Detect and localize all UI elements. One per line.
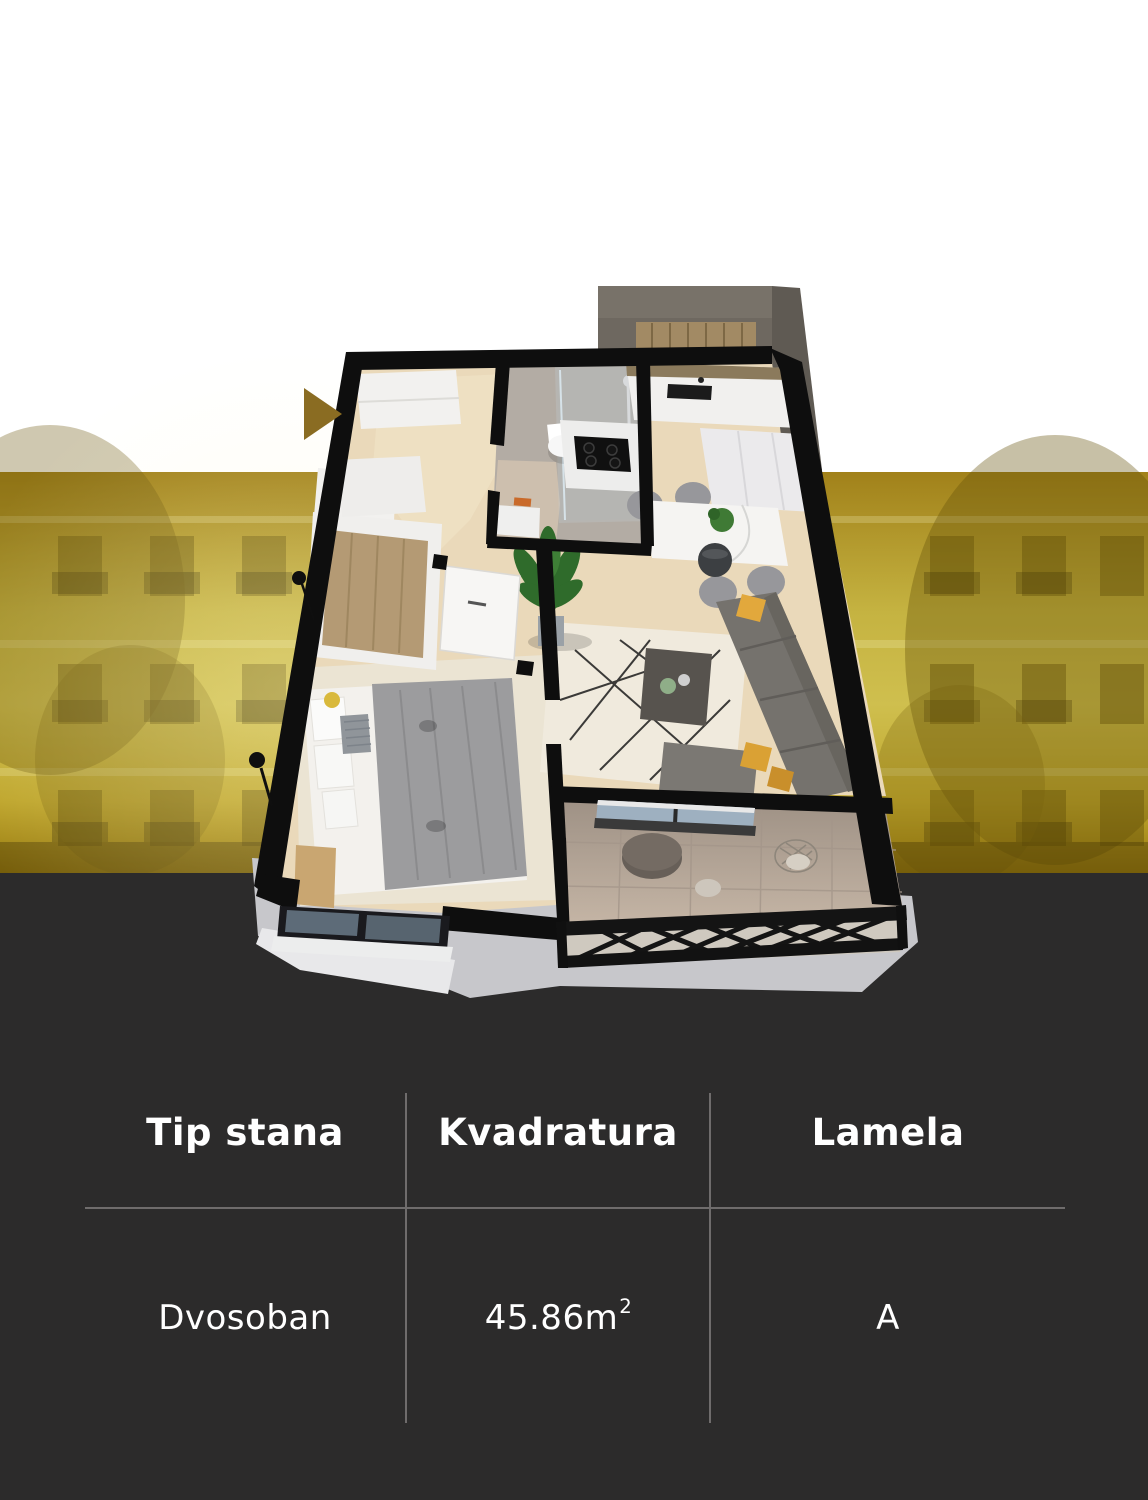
column-tip-stana: Tip stana Dvosoban: [85, 1093, 407, 1423]
apartment-info-table: Tip stana Dvosoban Kvadratura 45.86m2 La…: [85, 1093, 1065, 1423]
pendant-lamp: [698, 543, 732, 577]
apartment-type-value: Dvosoban: [85, 1298, 405, 1338]
column-lamela: Lamela A: [711, 1093, 1065, 1423]
bedside-table: [294, 845, 336, 908]
table-horizontal-divider: [85, 1207, 1065, 1209]
bathroom-vanity: [494, 505, 540, 538]
column-header: Tip stana: [85, 1111, 405, 1154]
column-kvadratura: Kvadratura 45.86m2: [407, 1093, 711, 1423]
column-header: Lamela: [711, 1111, 1065, 1154]
bed-blanket: [372, 678, 527, 890]
apartment-listing-page: { "sections": { "background_top_color": …: [0, 0, 1148, 1500]
apartment-lamela-value: A: [711, 1298, 1065, 1338]
kitchen-cabinets-top: [598, 286, 772, 318]
cooktop: [574, 436, 631, 472]
superscript: 2: [619, 1295, 632, 1318]
floorplan-render: [249, 286, 918, 998]
terrace-stool: [695, 879, 721, 897]
apartment-area-value: 45.86m2: [407, 1298, 709, 1338]
column-header: Kvadratura: [407, 1111, 709, 1154]
bedroom-door: [440, 566, 520, 660]
coffee-table: [640, 648, 712, 726]
kitchen-sink: [667, 384, 712, 400]
flowers: [324, 692, 340, 708]
